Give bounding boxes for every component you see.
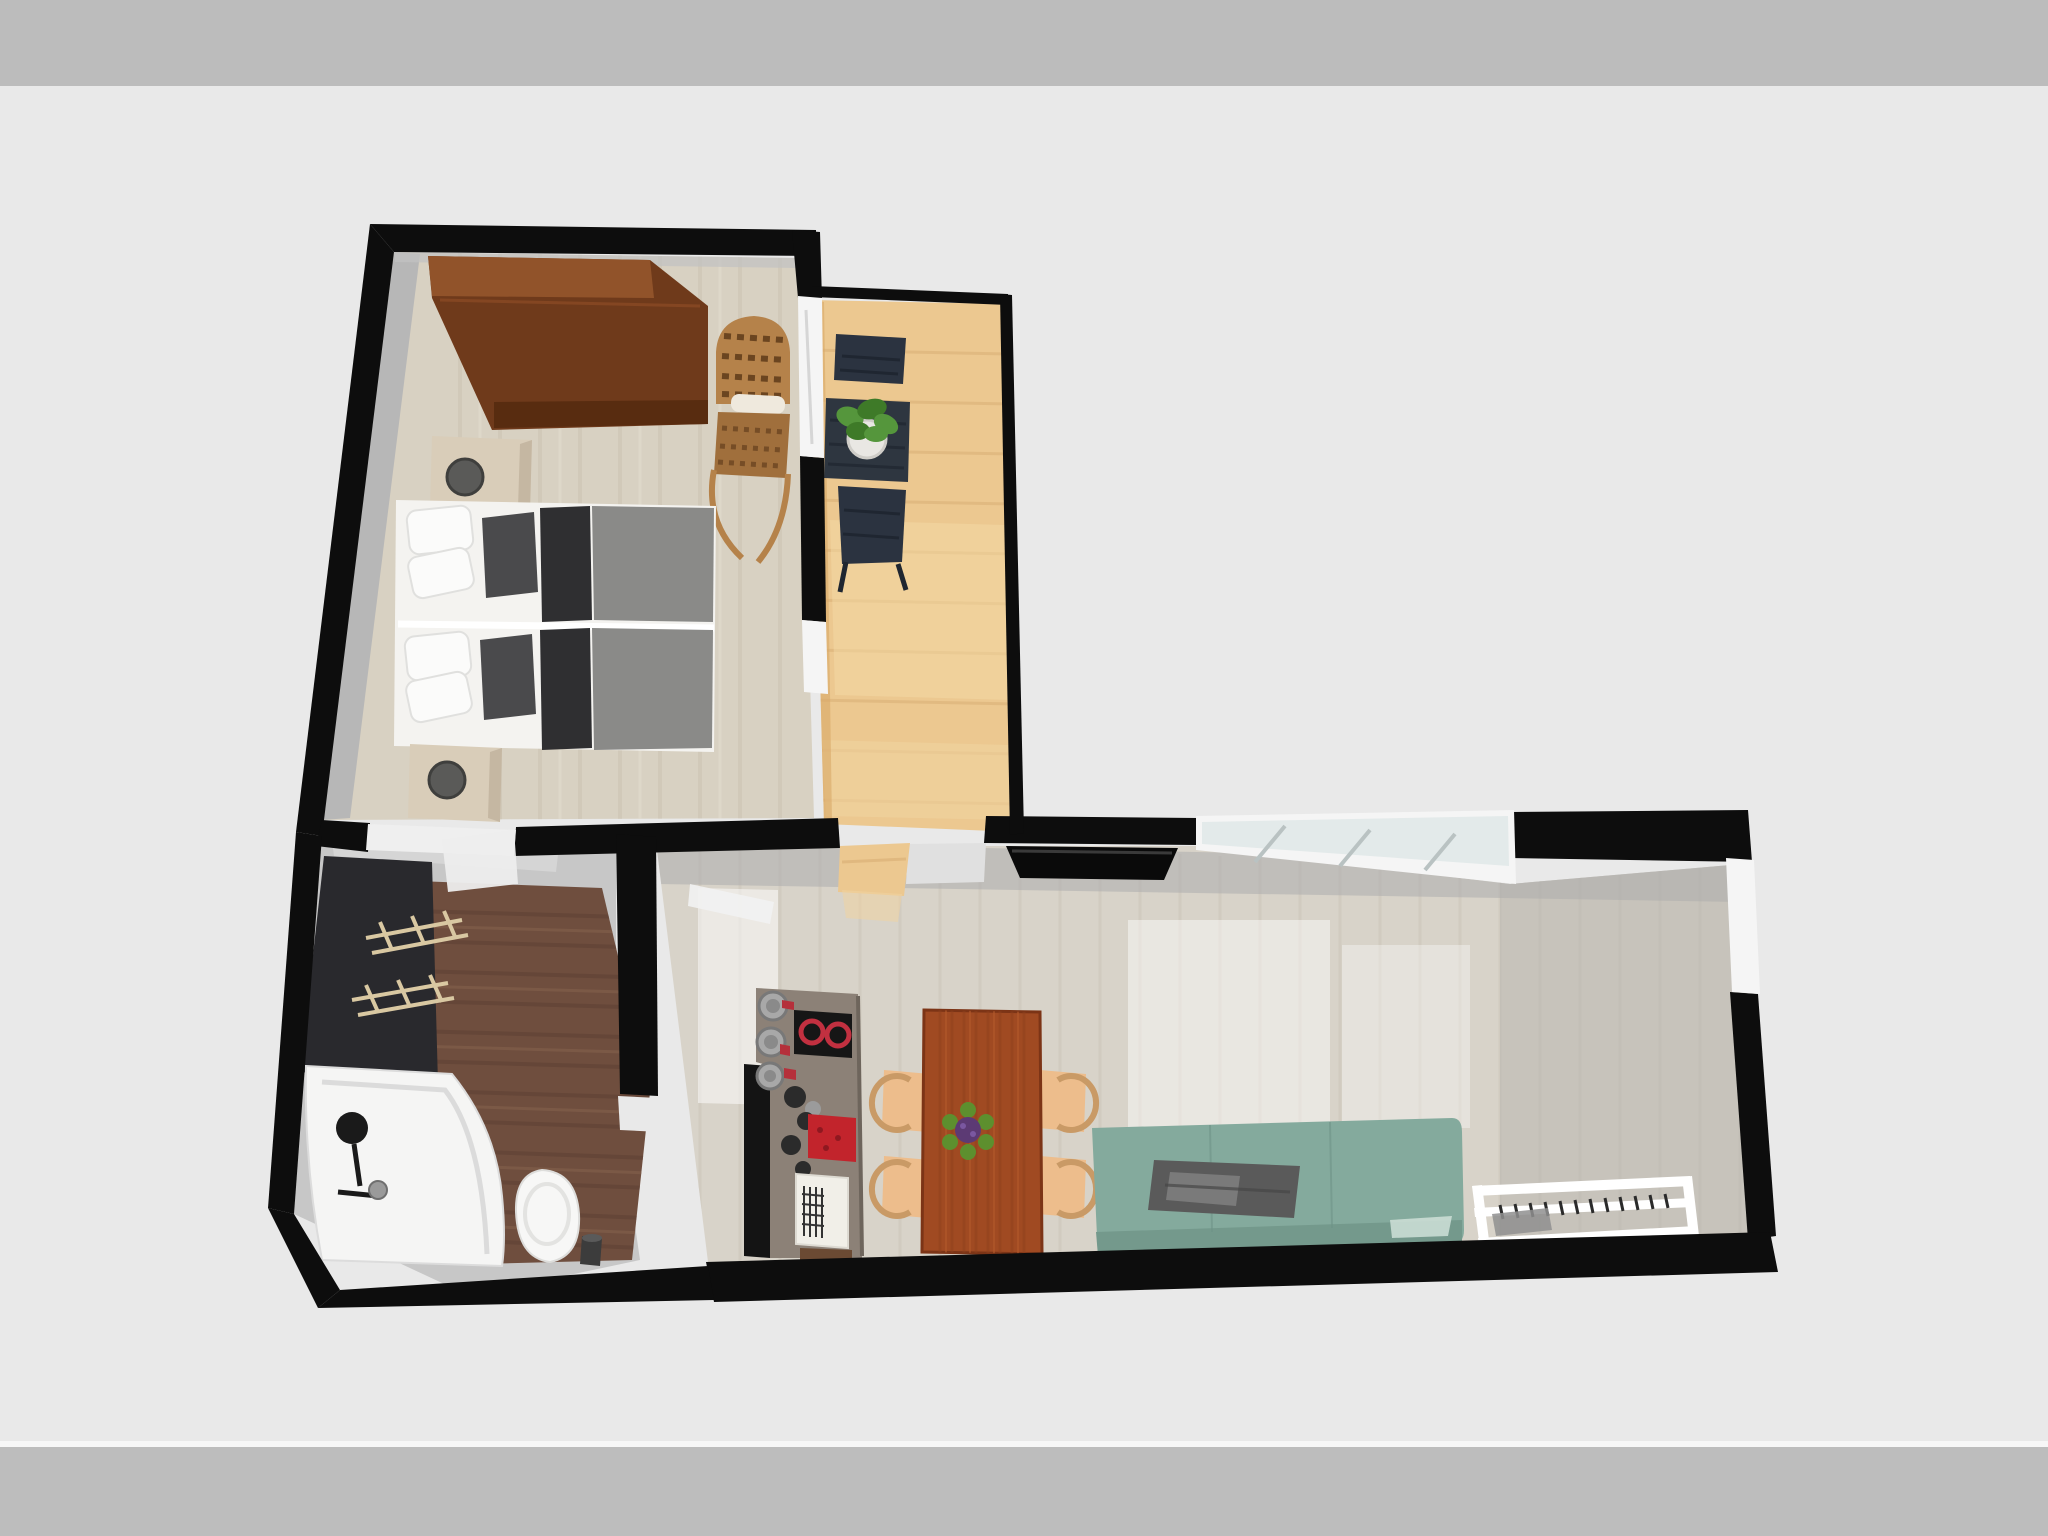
nightstand	[408, 744, 502, 822]
bottom-band	[0, 1447, 2048, 1536]
table-lamp	[429, 762, 465, 798]
balcony-door-tongue	[838, 843, 910, 922]
bed-runner	[540, 628, 592, 750]
dining-table	[922, 1008, 1042, 1256]
drain	[336, 1112, 368, 1144]
balcony-door-window	[802, 620, 828, 694]
balcony-door-landing	[906, 843, 986, 884]
wall-bedroom-right-mid	[800, 456, 826, 622]
kitchenette-counter	[744, 988, 862, 1262]
red-sink	[808, 1114, 856, 1162]
sofa	[1092, 1118, 1464, 1258]
table-lamp	[447, 459, 483, 495]
hall-door-threshold	[618, 1096, 660, 1132]
counter-side-panel	[744, 1064, 770, 1258]
shower-handset	[369, 1181, 387, 1199]
floor-plan-render	[0, 0, 2048, 1536]
waste-bin	[580, 1234, 602, 1266]
nightstand	[430, 436, 532, 512]
wall-hall-divider	[616, 834, 658, 1096]
bed-runner	[540, 506, 592, 622]
dish-drainer	[796, 1174, 848, 1248]
duvet	[592, 628, 713, 750]
bistro-table	[824, 395, 910, 482]
accent-pillow	[482, 512, 538, 598]
bottom-hairline	[0, 1441, 2048, 1447]
bedroom-door-leaf	[442, 830, 518, 892]
wall-living-top-right	[1510, 810, 1752, 862]
bistro-chair	[834, 334, 906, 384]
duvet	[592, 506, 714, 622]
accent-pillow	[480, 634, 536, 720]
top-band	[0, 0, 2048, 86]
toilet	[516, 1170, 579, 1262]
twin-beds	[394, 500, 716, 752]
